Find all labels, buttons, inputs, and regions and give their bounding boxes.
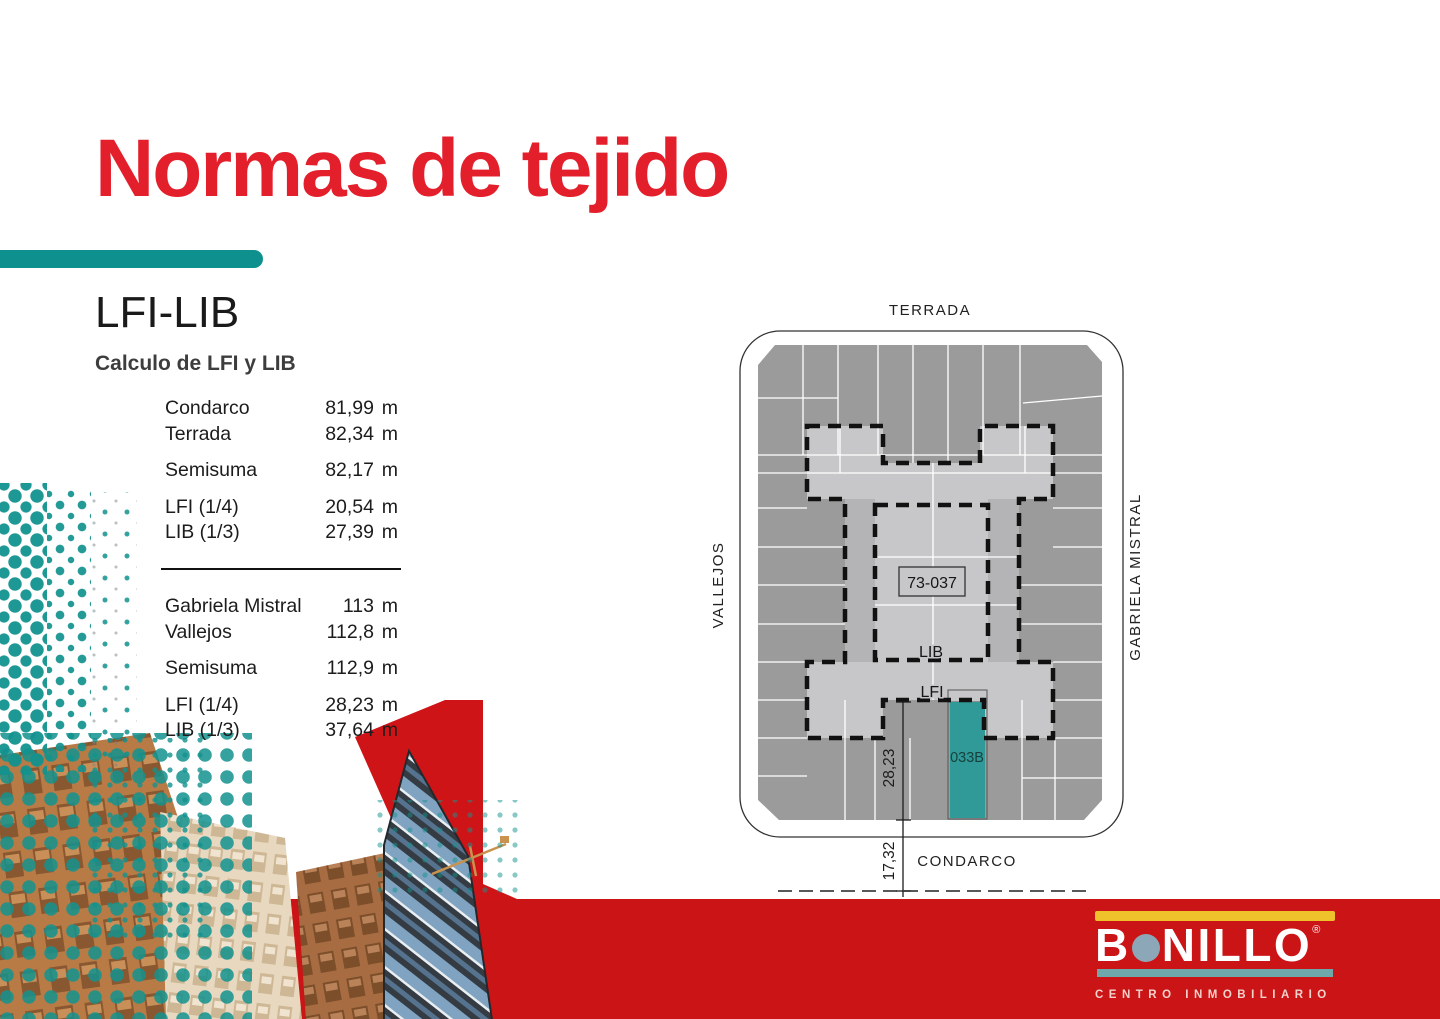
row-value: 113	[312, 595, 374, 618]
row-value: 82,17	[312, 459, 374, 482]
calc-table-group-2: Gabriela Mistral 113 m Vallejos 112,8 m …	[165, 594, 398, 744]
row-label: LIB (1/3)	[165, 521, 312, 544]
calc-table-group-1: Condarco 81,99 m Terrada 82,34 m Semisum…	[165, 396, 398, 546]
row-unit: m	[374, 397, 398, 420]
logo-wordmark: B NILLO ®	[1095, 922, 1337, 968]
calc-row: Gabriela Mistral 113 m	[165, 594, 398, 620]
row-label: LFI (1/4)	[165, 694, 312, 717]
lfi-label: LFI	[920, 684, 943, 701]
dimension-upper-label: 28,23	[881, 749, 898, 788]
calc-row: LFI (1/4) 20,54 m	[165, 494, 398, 520]
calc-row: LIB (1/3) 37,64 m	[165, 718, 398, 744]
logo-letters-rest: NILLO	[1162, 922, 1312, 968]
row-label: Condarco	[165, 397, 312, 420]
row-value: 20,54	[312, 496, 374, 519]
row-unit: m	[374, 423, 398, 446]
row-unit: m	[374, 496, 398, 519]
dimension-lower-label: 17,32	[881, 842, 898, 881]
parcel-id-label: 73-037	[907, 575, 957, 592]
row-label: LIB (1/3)	[165, 719, 312, 742]
street-terrada: TERRADA	[889, 302, 971, 319]
teal-accent-bar	[0, 250, 263, 268]
street-vallejos: VALLEJOS	[710, 542, 727, 629]
street-condarco: CONDARCO	[917, 853, 1017, 870]
row-unit: m	[374, 459, 398, 482]
logo-dot-icon	[1132, 934, 1160, 962]
bonillo-logo: B NILLO ® CENTRO INMOBILIARIO	[1095, 911, 1337, 1011]
calc-row: Semisuma 112,9 m	[165, 656, 398, 682]
row-unit: m	[374, 694, 398, 717]
row-unit: m	[374, 595, 398, 618]
row-label: Vallejos	[165, 621, 312, 644]
row-label: Semisuma	[165, 657, 312, 680]
street-gabriela-mistral: GABRIELA MISTRAL	[1127, 493, 1144, 660]
row-unit: m	[374, 521, 398, 544]
section-subheading: Calculo de LFI y LIB	[95, 352, 296, 376]
calc-row: LFI (1/4) 28,23 m	[165, 692, 398, 718]
calc-row: Vallejos 112,8 m	[165, 620, 398, 646]
row-label: Semisuma	[165, 459, 312, 482]
row-value: 27,39	[312, 521, 374, 544]
row-label: Terrada	[165, 423, 312, 446]
logo-letter-b: B	[1095, 922, 1131, 968]
row-value: 37,64	[312, 719, 374, 742]
lib-label: LIB	[919, 644, 943, 661]
block-plan-map: 73-037 LIB LFI 033B TERRADA CONDARCO VAL…	[695, 290, 1155, 915]
row-unit: m	[374, 719, 398, 742]
calc-row: Terrada 82,34 m	[165, 422, 398, 448]
row-label: Gabriela Mistral	[165, 595, 312, 618]
row-unit: m	[374, 621, 398, 644]
row-value: 112,8	[312, 621, 374, 644]
row-value: 112,9	[312, 657, 374, 680]
registered-mark: ®	[1312, 924, 1320, 936]
table-divider	[161, 568, 401, 570]
halftone-overlay-sparse	[368, 800, 518, 895]
row-value: 28,23	[312, 694, 374, 717]
calc-row: LIB (1/3) 27,39 m	[165, 520, 398, 546]
highlight-parcel-label: 033B	[950, 750, 984, 766]
section-heading: LFI-LIB	[95, 288, 239, 338]
calc-row: Condarco 81,99 m	[165, 396, 398, 422]
row-value: 81,99	[312, 397, 374, 420]
halftone-overlay-small	[86, 738, 204, 938]
page-title: Normas de tejido	[95, 126, 728, 212]
row-label: LFI (1/4)	[165, 496, 312, 519]
calc-row: Semisuma 82,17 m	[165, 458, 398, 484]
logo-tagline: CENTRO INMOBILIARIO	[1095, 989, 1337, 1001]
row-value: 82,34	[312, 423, 374, 446]
row-unit: m	[374, 657, 398, 680]
